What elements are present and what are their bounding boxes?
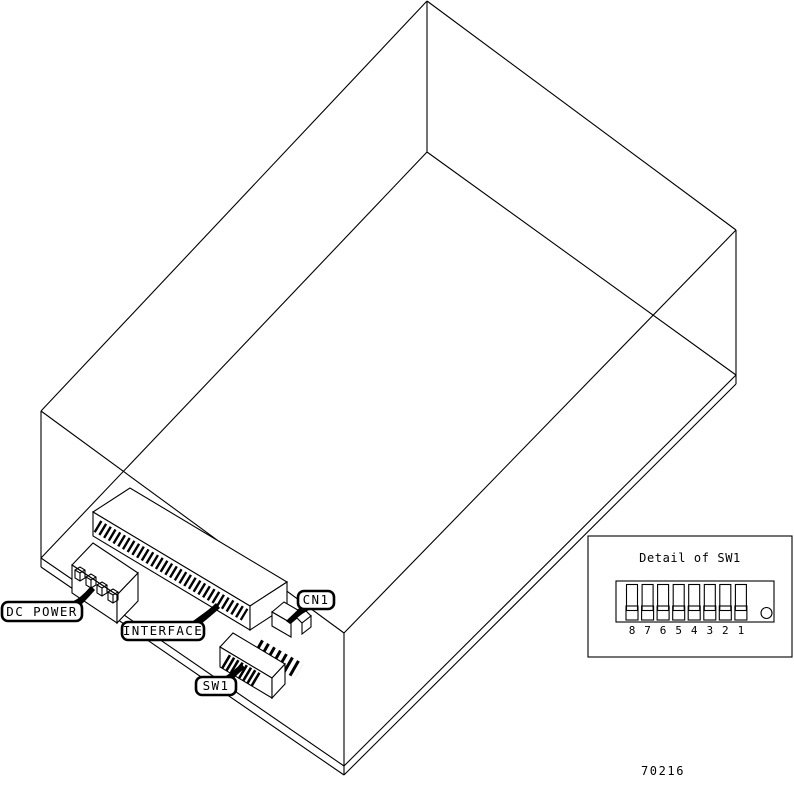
dip-switch-bank: 8 7 6 5 4 (626, 585, 747, 638)
switch-number: 4 (691, 624, 698, 637)
isometric-device-diagram: DC POWER INTERFACE CN1 SW1 Detail of SW1… (0, 0, 794, 787)
technical-drawing-page: DC POWER INTERFACE CN1 SW1 Detail of SW1… (0, 0, 794, 787)
callout-label: INTERFACE (123, 623, 203, 638)
switch-actuator (642, 606, 654, 620)
switch-actuator (657, 606, 669, 620)
detail-inset-title: Detail of SW1 (639, 551, 741, 565)
callout-interface: INTERFACE (122, 603, 220, 640)
switch-number: 2 (722, 624, 729, 637)
switch-slot (642, 585, 653, 611)
figure-number: 70216 (641, 764, 685, 778)
dip-switch-5: 5 (673, 585, 685, 638)
switch-slot (673, 585, 684, 611)
dip-switch-8: 8 (626, 585, 638, 638)
dip-switch-1: 1 (735, 585, 747, 638)
switch-slot (704, 585, 715, 611)
detail-inset: Detail of SW1 8 7 6 5 (588, 536, 792, 657)
dip-switch-4: 4 (688, 585, 700, 638)
switch-slot (720, 585, 731, 611)
switch-number: 7 (644, 624, 651, 637)
callout-label: SW1 (203, 678, 230, 693)
callout-label: DC POWER (6, 604, 77, 619)
switch-number: 5 (675, 624, 682, 637)
switch-actuator (673, 606, 685, 620)
chassis-edges (41, 1, 736, 775)
switch-actuator (688, 606, 700, 620)
switch-actuator (626, 606, 638, 620)
switch-number: 1 (738, 624, 745, 637)
switch-number: 6 (660, 624, 667, 637)
dip-switch-bank-border (616, 581, 774, 622)
switch-slot (735, 585, 746, 611)
switch-actuator (719, 606, 731, 620)
switch-actuator (704, 606, 716, 620)
switch-actuator (735, 606, 747, 620)
switch-slot (627, 585, 638, 611)
device-chassis-outline (41, 1, 736, 775)
dip-switch-2: 2 (719, 585, 731, 638)
dip-switch-7: 7 (642, 585, 654, 638)
switch-number: 3 (706, 624, 713, 637)
dip-switch-6: 6 (657, 585, 669, 638)
callout-label: CN1 (303, 592, 330, 607)
switch-slot (689, 585, 700, 611)
dip-switch-3: 3 (704, 585, 716, 638)
switch-slot (658, 585, 669, 611)
indicator-circle-icon (761, 608, 772, 619)
switch-number: 8 (629, 624, 636, 637)
